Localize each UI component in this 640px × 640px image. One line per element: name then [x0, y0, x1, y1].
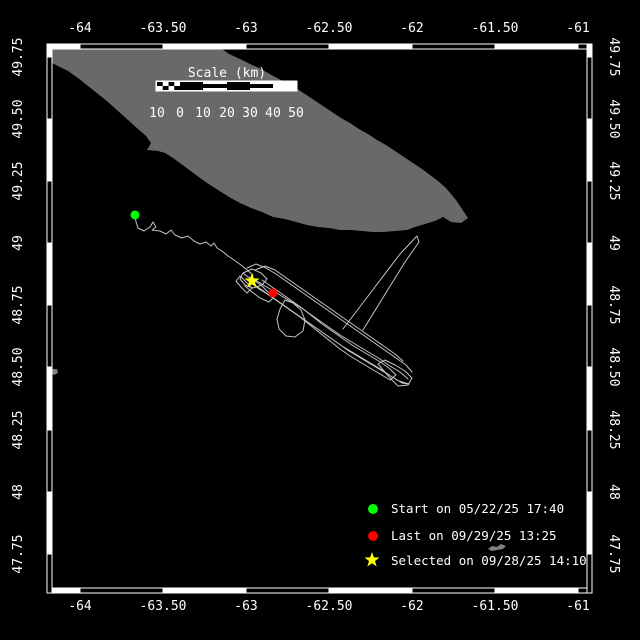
lat-label-right: 48.75 [606, 285, 621, 324]
scale-bar-segment [203, 84, 227, 88]
lat-label-left: 49.75 [11, 37, 26, 76]
lon-label-top: -64 [68, 21, 92, 36]
lat-label-right: 48.25 [606, 410, 621, 449]
lon-label-bottom: -64 [68, 599, 92, 614]
lat-label-left: 47.75 [11, 534, 26, 573]
lon-label-bottom: -61 [566, 599, 589, 614]
lat-label-left: 49.25 [11, 161, 26, 200]
legend-start-label: Start on 05/22/25 17:40 [391, 501, 564, 516]
lon-label-top: -62.50 [306, 21, 353, 36]
last-marker-group [269, 289, 278, 298]
scale-bar-label: 10 [195, 106, 211, 121]
lon-label-bottom: -63.50 [140, 599, 187, 614]
scale-bar-label: 40 [265, 106, 281, 121]
legend-selected-label: Selected on 09/28/25 14:10 [391, 553, 587, 568]
start-marker[interactable] [131, 211, 140, 220]
lon-label-top: -63 [234, 21, 257, 36]
scale-bar-segment [180, 82, 203, 90]
scale-bar-label: 30 [242, 106, 258, 121]
legend: Start on 05/22/25 17:40 Last on 09/29/25… [364, 501, 586, 568]
scale-bar-segment [250, 84, 273, 88]
lat-label-left: 48.50 [11, 347, 26, 386]
lat-label-right: 49.75 [606, 37, 621, 76]
lat-label-left: 48.25 [11, 410, 26, 449]
scale-bar-segment [227, 82, 250, 90]
legend-row-start: Start on 05/22/25 17:40 [368, 501, 564, 516]
lat-label-right: 47.75 [606, 534, 621, 573]
lat-label-right: 49 [606, 235, 621, 251]
scale-bar-label: 50 [288, 106, 304, 121]
lat-label-right: 49.25 [606, 161, 621, 200]
legend-last-icon [368, 531, 378, 541]
legend-last-label: Last on 09/29/25 13:25 [391, 528, 557, 543]
scale-bar-title: Scale (km) [188, 66, 266, 81]
tracking-map: -64 -63.50 -63 -62.50 -62 -61.50 -61 -64… [0, 0, 640, 640]
lon-label-bottom: -62.50 [306, 599, 353, 614]
legend-start-icon [368, 504, 378, 514]
lon-label-top: -61.50 [472, 21, 519, 36]
lat-label-left: 48.75 [11, 285, 26, 324]
lon-label-top: -63.50 [140, 21, 187, 36]
bottom-axis-labels: -64 -63.50 -63 -62.50 -62 -61.50 -61 [68, 599, 589, 614]
left-axis-labels: 49.75 49.50 49.25 49 48.75 48.50 48.25 4… [11, 37, 26, 573]
lon-label-top: -62 [400, 21, 423, 36]
scale-bar-label: 0 [176, 106, 184, 121]
right-axis-labels: 49.75 49.50 49.25 49 48.75 48.50 48.25 4… [606, 37, 621, 573]
last-marker[interactable] [269, 289, 278, 298]
scale-bar-label: 20 [219, 106, 235, 121]
lat-label-right: 49.50 [606, 99, 621, 138]
legend-row-last: Last on 09/29/25 13:25 [368, 528, 557, 543]
scale-bar-label: 10 [149, 106, 165, 121]
top-axis-labels: -64 -63.50 -63 -62.50 -62 -61.50 -61 [68, 21, 589, 36]
lat-label-left: 49 [11, 235, 26, 251]
start-marker-group [131, 211, 140, 220]
lat-label-left: 49.50 [11, 99, 26, 138]
legend-row-selected: Selected on 09/28/25 14:10 [364, 552, 586, 568]
lat-label-right: 48 [606, 484, 621, 500]
lon-label-bottom: -61.50 [472, 599, 519, 614]
lat-label-right: 48.50 [606, 347, 621, 386]
lon-label-bottom: -62 [400, 599, 423, 614]
lat-label-left: 48 [11, 484, 26, 500]
lon-label-top: -61 [566, 21, 589, 36]
lon-label-bottom: -63 [234, 599, 257, 614]
